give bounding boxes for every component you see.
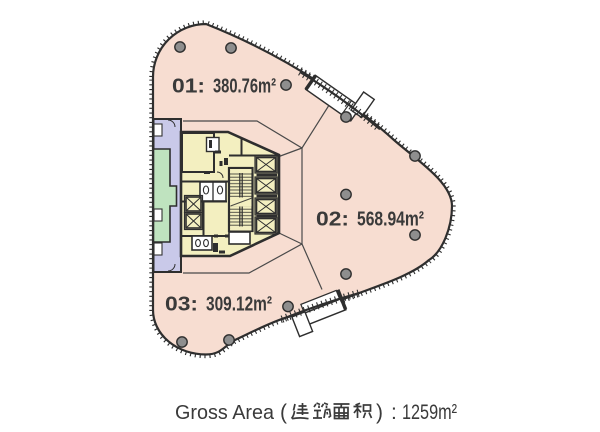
svg-text:309.12m²: 309.12m²: [206, 294, 272, 316]
svg-text:Gross Area: Gross Area: [175, 401, 275, 424]
svg-text:568.94m²: 568.94m²: [357, 209, 424, 231]
svg-text:01:: 01:: [172, 76, 205, 98]
svg-text:): ): [376, 401, 383, 424]
svg-text:(: (: [280, 401, 287, 424]
svg-text:03:: 03:: [165, 294, 198, 316]
svg-text:1259m²: 1259m²: [402, 401, 457, 424]
svg-text::: :: [391, 401, 397, 424]
svg-text:380.76m²: 380.76m²: [213, 76, 276, 98]
svg-text:02:: 02:: [316, 209, 349, 231]
